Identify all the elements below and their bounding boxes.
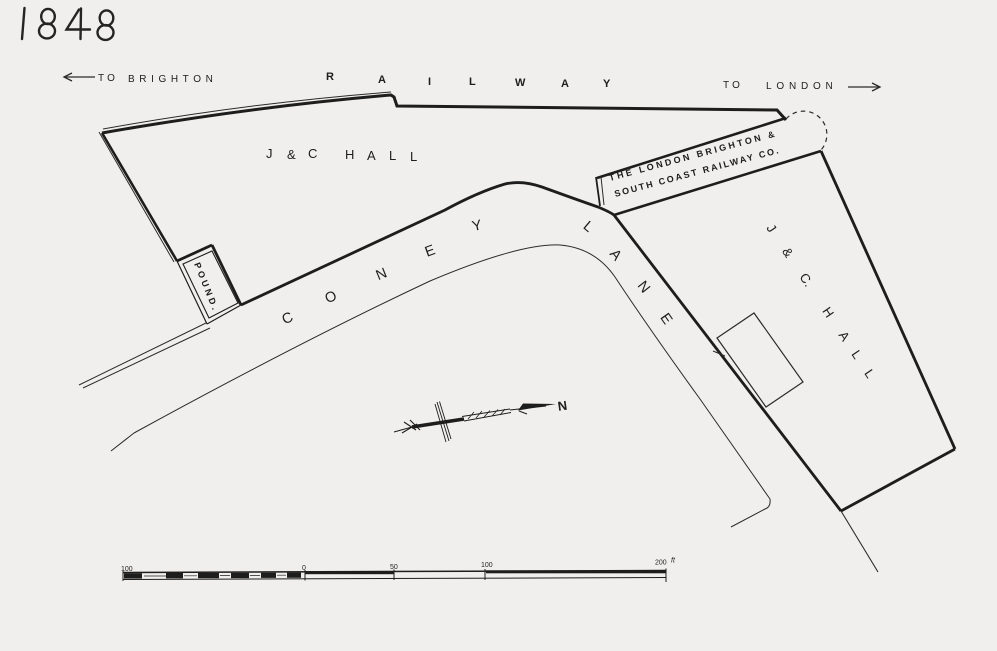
svg-text:L: L	[389, 148, 396, 163]
svg-text:100: 100	[121, 566, 133, 573]
svg-text:0: 0	[302, 565, 306, 572]
svg-text:A: A	[561, 78, 569, 90]
svg-text:200: 200	[655, 560, 667, 567]
svg-text:TO: TO	[98, 73, 118, 84]
svg-text:&: &	[287, 147, 296, 162]
svg-text:H: H	[345, 147, 354, 162]
svg-text:C: C	[308, 146, 317, 161]
svg-text:L: L	[410, 149, 417, 164]
svg-text:100: 100	[481, 562, 493, 569]
svg-text:BRIGHTON: BRIGHTON	[128, 74, 217, 85]
svg-text:J: J	[266, 146, 273, 161]
svg-text:Y: Y	[603, 78, 611, 90]
svg-text:I: I	[428, 76, 431, 88]
svg-text:LONDON: LONDON	[766, 81, 838, 92]
svg-text:L: L	[469, 76, 476, 88]
svg-text:50: 50	[390, 564, 398, 571]
svg-text:R: R	[326, 71, 334, 83]
svg-text:TO: TO	[723, 80, 743, 91]
svg-text:A: A	[378, 74, 386, 86]
svg-text:W: W	[515, 77, 526, 89]
svg-text:A: A	[367, 148, 376, 163]
